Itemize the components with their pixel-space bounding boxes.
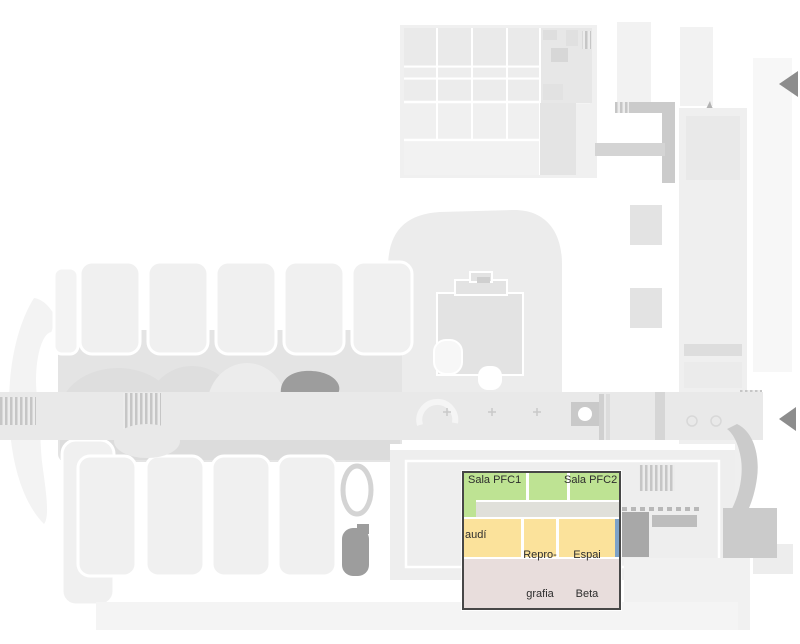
room-label-sala-pfc2: Sala PFC2	[564, 474, 617, 487]
room-label-line: Espai	[565, 549, 609, 562]
room-label-sala-pfc1: Sala PFC1	[468, 474, 521, 487]
room-label-gaudi: audí	[465, 529, 486, 542]
map-arrow-icon-bottom	[779, 407, 796, 431]
room-label-espai-beta: Espai Beta	[565, 523, 609, 610]
room-label-line: Beta	[565, 588, 609, 601]
map-canvas[interactable]: Sala PFC1 Sala PFC2 audí Repro- grafia E…	[0, 0, 800, 644]
room-blue-sliver[interactable]	[615, 519, 619, 557]
room-divider	[526, 473, 529, 502]
corridor-strip	[476, 502, 619, 517]
map-arrow-icon-top	[779, 71, 798, 97]
room-label-line: Repro-	[518, 549, 562, 562]
room-label-reprografia: Repro- grafia	[518, 523, 562, 610]
floorplan-graphic	[0, 0, 800, 644]
stair-ring	[343, 466, 371, 514]
room-label-line: grafia	[518, 588, 562, 601]
stair-blob-south	[342, 528, 369, 576]
selection-highlight-box: Sala PFC1 Sala PFC2 audí Repro- grafia E…	[462, 471, 621, 610]
